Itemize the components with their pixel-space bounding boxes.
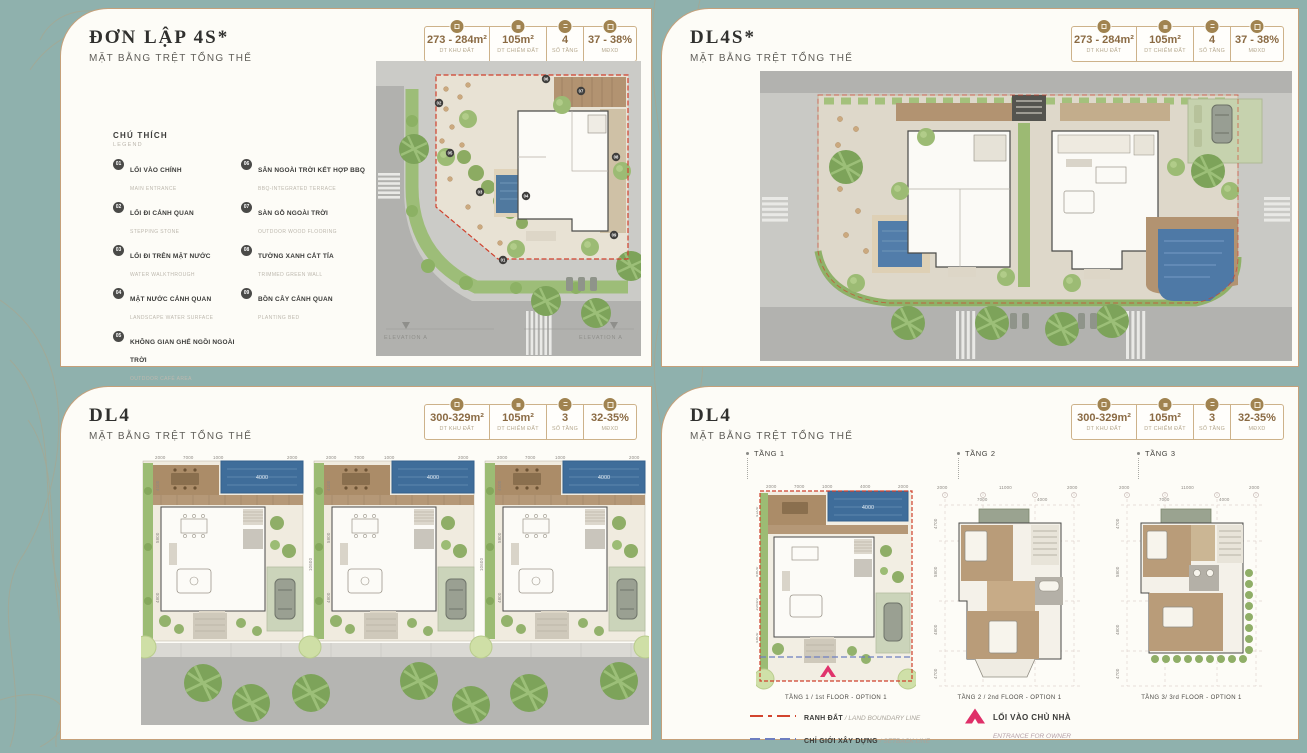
legend-label-en: ENTRANCE FOR OWNER xyxy=(993,733,1071,740)
legend-item: 01 LỐI VÀO CHÍNH MAIN ENTRANCE xyxy=(113,159,241,195)
stat-value: 105m² xyxy=(1137,413,1193,424)
stat-value: 32-35% xyxy=(584,413,636,424)
land-area-icon xyxy=(450,19,465,34)
footprint-area-icon xyxy=(1158,397,1173,412)
page-subtitle: MẶT BẰNG TRỆT TỔNG THỂ xyxy=(89,431,252,442)
stat-label: SỐ TẦNG xyxy=(549,426,581,431)
stat-density: 37 - 38% MĐXD xyxy=(583,26,637,62)
svg-text:2000: 2000 xyxy=(1119,485,1130,490)
svg-text:1000: 1000 xyxy=(822,484,833,489)
svg-text:5800: 5800 xyxy=(756,566,759,577)
stat-label: DT CHIẾM ĐẤT xyxy=(1140,48,1190,53)
legend-label-vi: LỐI VÀO CHÍNH xyxy=(130,167,182,174)
slide-dl4-site: DL4 MẶT BẰNG TRỆT TỔNG THỂ 300-329m² DT … xyxy=(60,386,652,740)
bullet-icon xyxy=(957,452,960,455)
legend-label-en: MAIN ENTRANCE xyxy=(130,186,177,192)
stat-value: 300-329m² xyxy=(425,413,489,424)
legend-label-vi: SÂN NGOÀI TRỜI KẾT HỢP BBQ xyxy=(258,167,365,174)
page-subtitle: MẶT BẰNG TRỆT TỔNG THỂ xyxy=(89,53,252,64)
legend-lines-block: RANH ĐẤT / LAND BOUNDARY LINE CHỈ GIỚI X… xyxy=(750,707,930,753)
legend-subtitle: LEGEND xyxy=(113,142,405,148)
svg-text:4700: 4700 xyxy=(933,518,938,529)
bed xyxy=(1147,531,1167,559)
svg-text:2000: 2000 xyxy=(898,484,909,489)
stat-value: 32-35% xyxy=(1231,413,1283,424)
svg-text:5800: 5800 xyxy=(933,566,938,577)
stat-label: SỐ TẦNG xyxy=(549,48,581,53)
legend-label-vi: LỐI VÀO CHỦ NHÀ xyxy=(993,713,1071,722)
pergola-left xyxy=(896,103,1014,121)
tree xyxy=(756,669,774,689)
legend-item-setback: CHỈ GIỚI XÂY DỰNG / SETBACK LINE xyxy=(750,730,930,748)
svg-text:02: 02 xyxy=(437,101,442,106)
stats-bar: 300-329m² DT KHU ĐẤT 105m² DT CHIẾM ĐẤT … xyxy=(425,404,637,440)
stat-value: 3 xyxy=(547,413,583,424)
legend-item: 05 KHÔNG GIAN GHẾ NGỒI NGOÀI TRỜI OUTDOO… xyxy=(113,331,241,385)
floor-caption-1: TẦNG 1 / 1st FLOOR - OPTION 1 xyxy=(756,695,916,701)
stat-land-area: 273 - 284m² DT KHU ĐẤT xyxy=(1071,26,1137,62)
site-plan-twin-villa xyxy=(760,71,1292,361)
car xyxy=(1212,105,1232,143)
svg-text:06: 06 xyxy=(544,77,549,82)
legend-label-en: LAND BOUNDARY LINE xyxy=(848,715,920,722)
stat-density: 37 - 38% MĐXD xyxy=(1230,26,1284,62)
svg-text:10600: 10600 xyxy=(1113,589,1114,603)
floor-plan-3: 2000 11000 2000 7000 4000 4700 5800 1060… xyxy=(1113,481,1270,693)
floor-count-icon xyxy=(558,397,573,412)
card-header: DL4 MẶT BẰNG TRỆT TỔNG THỂ xyxy=(89,405,252,442)
svg-text:7000: 7000 xyxy=(977,497,988,502)
card-header: DL4 MẶT BẰNG TRỆT TỔNG THỂ xyxy=(690,405,853,442)
legend-number-badge: 04 xyxy=(113,288,124,299)
center-green-spine xyxy=(1018,123,1030,287)
svg-text:4700: 4700 xyxy=(1115,668,1120,679)
guide-line xyxy=(747,458,748,479)
stat-label: MĐXD xyxy=(587,426,634,431)
stat-density: 32-35% MĐXD xyxy=(583,404,637,440)
footprint-area-icon xyxy=(1158,19,1173,34)
legend-number-badge: 09 xyxy=(241,288,252,299)
legend-label-en: OUTDOOR CAFÉ AREA xyxy=(130,376,192,382)
page-subtitle: MẶT BẰNG TRỆT TỔNG THỂ xyxy=(690,53,853,64)
floor-count-icon xyxy=(1205,397,1220,412)
stat-label: DT KHU ĐẤT xyxy=(428,426,486,431)
svg-text:11000: 11000 xyxy=(999,485,1012,490)
slide-dl4-floors: DL4 MẶT BẰNG TRỆT TỔNG THỂ 300-329m² DT … xyxy=(661,386,1299,740)
car xyxy=(884,603,902,641)
slide-don-lap-4s: ĐƠN LẬP 4S* MẶT BẰNG TRỆT TỔNG THỂ 273 -… xyxy=(60,8,652,367)
svg-text:5800: 5800 xyxy=(1115,566,1120,577)
sofa xyxy=(1163,607,1193,627)
stat-floors: 4 SỐ TẦNG xyxy=(1193,26,1231,62)
svg-text:08: 08 xyxy=(614,155,619,160)
setback-dash-icon xyxy=(750,738,796,740)
svg-text:07: 07 xyxy=(579,89,584,94)
stat-value: 300-329m² xyxy=(1072,413,1136,424)
legend-label-vi: SÀN GỖ NGOÀI TRỜI xyxy=(258,210,328,217)
legend-label-vi: BỒN CÂY CẢNH QUAN xyxy=(258,296,333,303)
axis-markers xyxy=(943,493,1077,498)
stat-label: DT CHIẾM ĐẤT xyxy=(493,426,543,431)
bathroom xyxy=(1189,565,1219,591)
footprint-area-icon xyxy=(511,19,526,34)
stat-floors: 4 SỐ TẦNG xyxy=(546,26,584,62)
stat-value: 105m² xyxy=(1137,35,1193,46)
svg-text:01: 01 xyxy=(501,258,506,263)
legend-label-en: BBQ-INTEGRATED TERRACE xyxy=(258,186,336,192)
stat-value: 273 - 284m² xyxy=(1072,35,1136,46)
elevation-label-right: ELEVATION A xyxy=(579,335,623,341)
stat-label: DT KHU ĐẤT xyxy=(428,48,486,53)
svg-text:09: 09 xyxy=(612,233,617,238)
svg-text:03: 03 xyxy=(478,190,483,195)
footprint-area-icon xyxy=(511,397,526,412)
legend-item: 04 MẶT NƯỚC CẢNH QUAN LANDSCAPE WATER SU… xyxy=(113,288,241,324)
stat-label: SỐ TẦNG xyxy=(1196,48,1228,53)
legend-item: 02 LỐI ĐI CẢNH QUAN STEPPING STONE xyxy=(113,202,241,238)
page-title: DL4S* xyxy=(690,27,853,49)
svg-text:4800: 4800 xyxy=(933,624,938,635)
svg-text:4000: 4000 xyxy=(860,484,871,489)
porch-right xyxy=(1084,269,1110,279)
bottom-legend: RANH ĐẤT / LAND BOUNDARY LINE CHỈ GIỚI X… xyxy=(750,707,1071,753)
svg-text:4700: 4700 xyxy=(933,668,938,679)
stat-label: SỐ TẦNG xyxy=(1196,426,1228,431)
stat-footprint: 105m² DT CHIẾM ĐẤT xyxy=(489,26,547,62)
bathtub xyxy=(1039,581,1059,591)
tab-floor-2: TẦNG 2 xyxy=(957,449,996,458)
legend-title: CHÚ THÍCH xyxy=(113,131,405,140)
stat-label: DT KHU ĐẤT xyxy=(1075,48,1133,53)
svg-text:2000: 2000 xyxy=(1067,485,1078,490)
stat-value: 105m² xyxy=(490,35,546,46)
porch-left xyxy=(948,267,976,277)
svg-text:2000: 2000 xyxy=(766,484,777,489)
page-title: DL4 xyxy=(89,405,252,427)
stats-bar: 300-329m² DT KHU ĐẤT 105m² DT CHIẾM ĐẤT … xyxy=(1072,404,1284,440)
balcony-bottom xyxy=(975,659,1035,677)
stat-label: MĐXD xyxy=(587,48,634,53)
legend-label-en: PLANTING BED xyxy=(258,315,299,321)
density-icon xyxy=(1250,397,1265,412)
stat-label: MĐXD xyxy=(1234,426,1281,431)
guide-line xyxy=(1138,458,1139,479)
legend: CHÚ THÍCH LEGEND 01 LỐI VÀO CHÍNH MAIN E… xyxy=(113,131,405,428)
stat-floors: 3 SỐ TẦNG xyxy=(546,404,584,440)
stat-value: 3 xyxy=(1194,413,1230,424)
legend-number-badge: 06 xyxy=(241,159,252,170)
floor-count-icon xyxy=(558,19,573,34)
svg-text:7000: 7000 xyxy=(794,484,805,489)
stat-value: 4 xyxy=(1194,35,1230,46)
svg-text:4800: 4800 xyxy=(756,632,759,643)
bullet-icon xyxy=(746,452,749,455)
balcony xyxy=(1161,509,1211,523)
legend-number-badge: 07 xyxy=(241,202,252,213)
svg-text:2000: 2000 xyxy=(1249,485,1260,490)
legend-label-en: LANDSCAPE WATER SURFACE xyxy=(130,315,213,321)
stat-density: 32-35% MĐXD xyxy=(1230,404,1284,440)
density-icon xyxy=(1250,19,1265,34)
land-area-icon xyxy=(1097,397,1112,412)
land-boundary-dash-icon xyxy=(750,715,796,717)
svg-text:4000: 4000 xyxy=(862,505,874,511)
legend-label-vi: MẶT NƯỚC CẢNH QUAN xyxy=(130,296,211,303)
legend-label-vi: LỐI ĐI CẢNH QUAN xyxy=(130,210,194,217)
legend-item: 03 LỐI ĐI TRÊN MẶT NƯỚC WATER WALKTHROUG… xyxy=(113,245,241,281)
svg-text:4700: 4700 xyxy=(1115,518,1120,529)
tab-floor-3: TẦNG 3 xyxy=(1137,449,1176,458)
svg-text:2000: 2000 xyxy=(937,485,948,490)
hallway xyxy=(987,581,1035,611)
floor-plan-1: 4000 2000 7000 1000 4000 2000 4100 5800 … xyxy=(756,481,916,693)
stats-bar: 273 - 284m² DT KHU ĐẤT 105m² DT CHIẾM ĐẤ… xyxy=(1072,26,1284,62)
svg-text:11000: 11000 xyxy=(1181,485,1194,490)
stat-footprint: 105m² DT CHIẾM ĐẤT xyxy=(1136,26,1194,62)
page-title: ĐƠN LẬP 4S* xyxy=(89,27,252,49)
legend-label-vi: KHÔNG GIAN GHẾ NGỒI NGOÀI TRỜI xyxy=(130,339,235,364)
density-icon xyxy=(603,19,618,34)
axis-markers xyxy=(1125,493,1259,498)
legend-label-en: SETBACK LINE xyxy=(883,738,930,745)
pergola-right xyxy=(1060,103,1170,121)
legend-label-vi: TƯỜNG XANH CẮT TỈA xyxy=(258,253,334,260)
stat-land-area: 300-329m² DT KHU ĐẤT xyxy=(1071,404,1137,440)
stat-value: 273 - 284m² xyxy=(425,35,489,46)
stat-footprint: 105m² DT CHIẾM ĐẤT xyxy=(1136,404,1194,440)
page-subtitle: MẶT BẰNG TRỆT TỔNG THỂ xyxy=(690,431,853,442)
legend-number-badge: 05 xyxy=(113,331,124,342)
legend-label-en: STEPPING STONE xyxy=(130,229,179,235)
site-plan-corner-lot: 01 02 03 04 05 06 07 08 09 ELEVATION A E… xyxy=(376,61,641,356)
laundry xyxy=(1191,525,1215,561)
stat-label: DT KHU ĐẤT xyxy=(1075,426,1133,431)
legend-label-en: OUTDOOR WOOD FLOORING xyxy=(258,229,337,235)
floor-plan-2: 2000 11000 2000 7000 4000 4700 5800 1060… xyxy=(931,481,1088,693)
legend-label-vi: LỐI ĐI TRÊN MẶT NƯỚC xyxy=(130,253,211,260)
legend-number-badge: 03 xyxy=(113,245,124,256)
stat-value: 4 xyxy=(547,35,583,46)
stat-land-area: 300-329m² DT KHU ĐẤT xyxy=(424,404,490,440)
floor-label: TẦNG 1 xyxy=(754,449,785,458)
legend-label-en: WATER WALKTHROUGH xyxy=(130,272,195,278)
stat-value: 105m² xyxy=(490,413,546,424)
elevation-label-left: ELEVATION A xyxy=(384,335,428,341)
legend-label-vi: RANH ĐẤT xyxy=(804,715,843,722)
legend-label-vi: CHỈ GIỚI XÂY DỰNG xyxy=(804,738,878,745)
stat-label: DT CHIẾM ĐẤT xyxy=(1140,426,1190,431)
entrance-arrow-icon xyxy=(964,707,986,726)
stat-footprint: 105m² DT CHIẾM ĐẤT xyxy=(489,404,547,440)
svg-text:4000: 4000 xyxy=(1037,497,1048,502)
bed xyxy=(965,531,987,561)
floor-label: TẦNG 2 xyxy=(965,449,996,458)
floor-count-icon xyxy=(1205,19,1220,34)
stat-label: DT CHIẾM ĐẤT xyxy=(493,48,543,53)
stat-land-area: 273 - 284m² DT KHU ĐẤT xyxy=(424,26,490,62)
svg-text:4100: 4100 xyxy=(756,506,759,517)
svg-text:10600: 10600 xyxy=(931,589,932,603)
stat-value: 37 - 38% xyxy=(1231,35,1283,46)
floor-caption-3: TẦNG 3/ 3rd FLOOR - OPTION 1 xyxy=(1113,695,1270,701)
legend-number-badge: 01 xyxy=(113,159,124,170)
svg-text:04: 04 xyxy=(524,194,529,199)
floor-label: TẦNG 3 xyxy=(1145,449,1176,458)
svg-text:4000: 4000 xyxy=(1219,497,1230,502)
balcony xyxy=(979,509,1029,523)
guide-line xyxy=(958,458,959,479)
land-area-icon xyxy=(450,397,465,412)
page-title: DL4 xyxy=(690,405,853,427)
stat-value: 37 - 38% xyxy=(584,35,636,46)
parked-vehicles xyxy=(566,277,597,291)
legend-item-entrance: LỐI VÀO CHỦ NHÀ ENTRANCE FOR OWNER xyxy=(964,707,1071,743)
entry-porch xyxy=(526,231,556,241)
stat-label: MĐXD xyxy=(1234,48,1281,53)
stat-floors: 3 SỐ TẦNG xyxy=(1193,404,1231,440)
legend-label-en: TRIMMED GREEN WALL xyxy=(258,272,323,278)
stats-bar: 273 - 284m² DT KHU ĐẤT 105m² DT CHIẾM ĐẤ… xyxy=(425,26,637,62)
floor-caption-2: TẦNG 2 / 2nd FLOOR - OPTION 1 xyxy=(931,695,1088,701)
road-top xyxy=(760,71,1292,93)
svg-text:05: 05 xyxy=(448,151,453,156)
tree xyxy=(898,669,916,689)
legend-number-badge: 02 xyxy=(113,202,124,213)
land-area-icon xyxy=(1097,19,1112,34)
svg-text:7000: 7000 xyxy=(1159,497,1170,502)
svg-text:4800: 4800 xyxy=(1115,624,1120,635)
slide-dl4s: DL4S* MẶT BẰNG TRỆT TỔNG THỂ 273 - 284m²… xyxy=(661,8,1299,367)
bed xyxy=(989,621,1017,653)
site-plan-three-units: 4000 xyxy=(141,451,649,725)
sidewalk xyxy=(141,643,649,657)
legend-number-badge: 08 xyxy=(241,245,252,256)
legend-item-land-boundary: RANH ĐẤT / LAND BOUNDARY LINE xyxy=(750,707,930,725)
svg-text:10600: 10600 xyxy=(756,597,759,611)
card-header: DL4S* MẶT BẰNG TRỆT TỔNG THỂ xyxy=(690,27,853,64)
bullet-icon xyxy=(1137,452,1140,455)
card-header: ĐƠN LẬP 4S* MẶT BẰNG TRỆT TỔNG THỂ xyxy=(89,27,252,64)
density-icon xyxy=(603,397,618,412)
utility-block xyxy=(1012,95,1046,121)
tab-floor-1: TẦNG 1 xyxy=(746,449,785,458)
